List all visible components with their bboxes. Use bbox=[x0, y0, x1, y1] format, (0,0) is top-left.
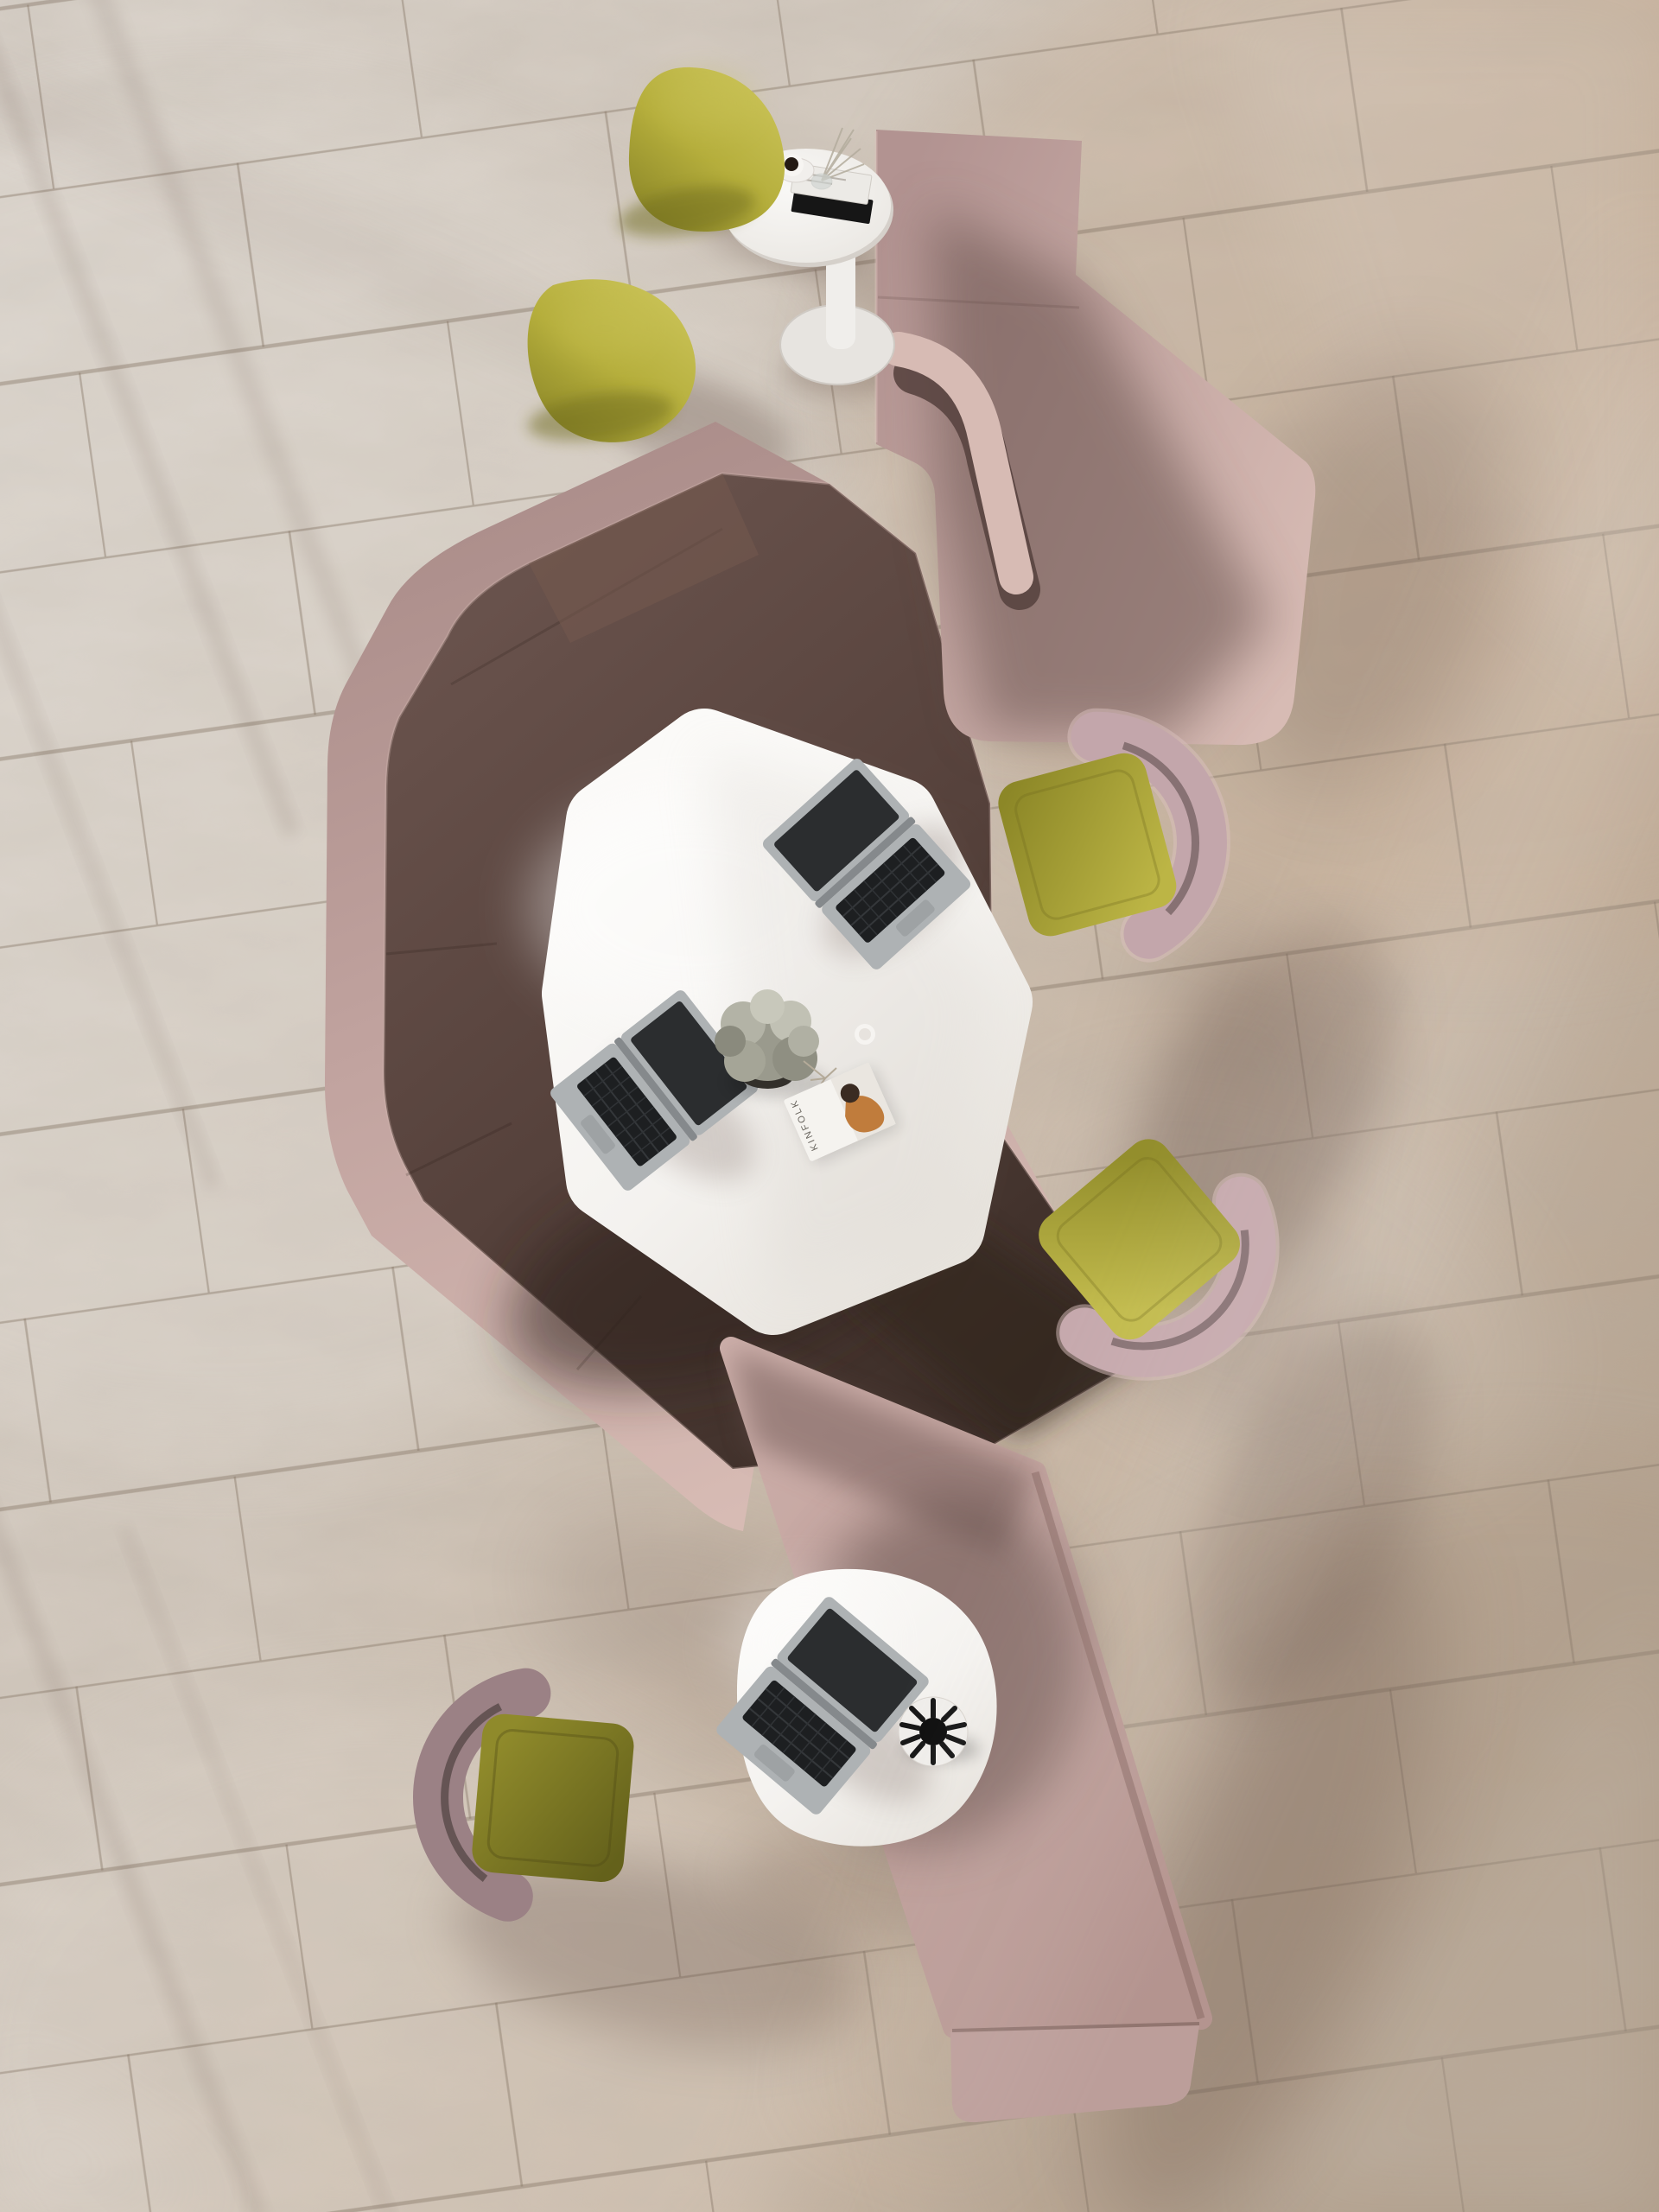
glass-vase bbox=[811, 174, 832, 189]
pouf-highlight bbox=[553, 296, 657, 361]
bowl-center bbox=[919, 1718, 947, 1745]
work-table: KINFOLK bbox=[527, 747, 994, 1296]
cup-inner bbox=[859, 1028, 871, 1040]
lounge-scene-photo: KINFOLK bbox=[0, 0, 1659, 2212]
coffee bbox=[785, 157, 798, 171]
chair-seat bbox=[470, 1713, 635, 1885]
pouf-highlight bbox=[657, 73, 752, 134]
lounge-render: KINFOLK bbox=[0, 0, 1659, 2212]
